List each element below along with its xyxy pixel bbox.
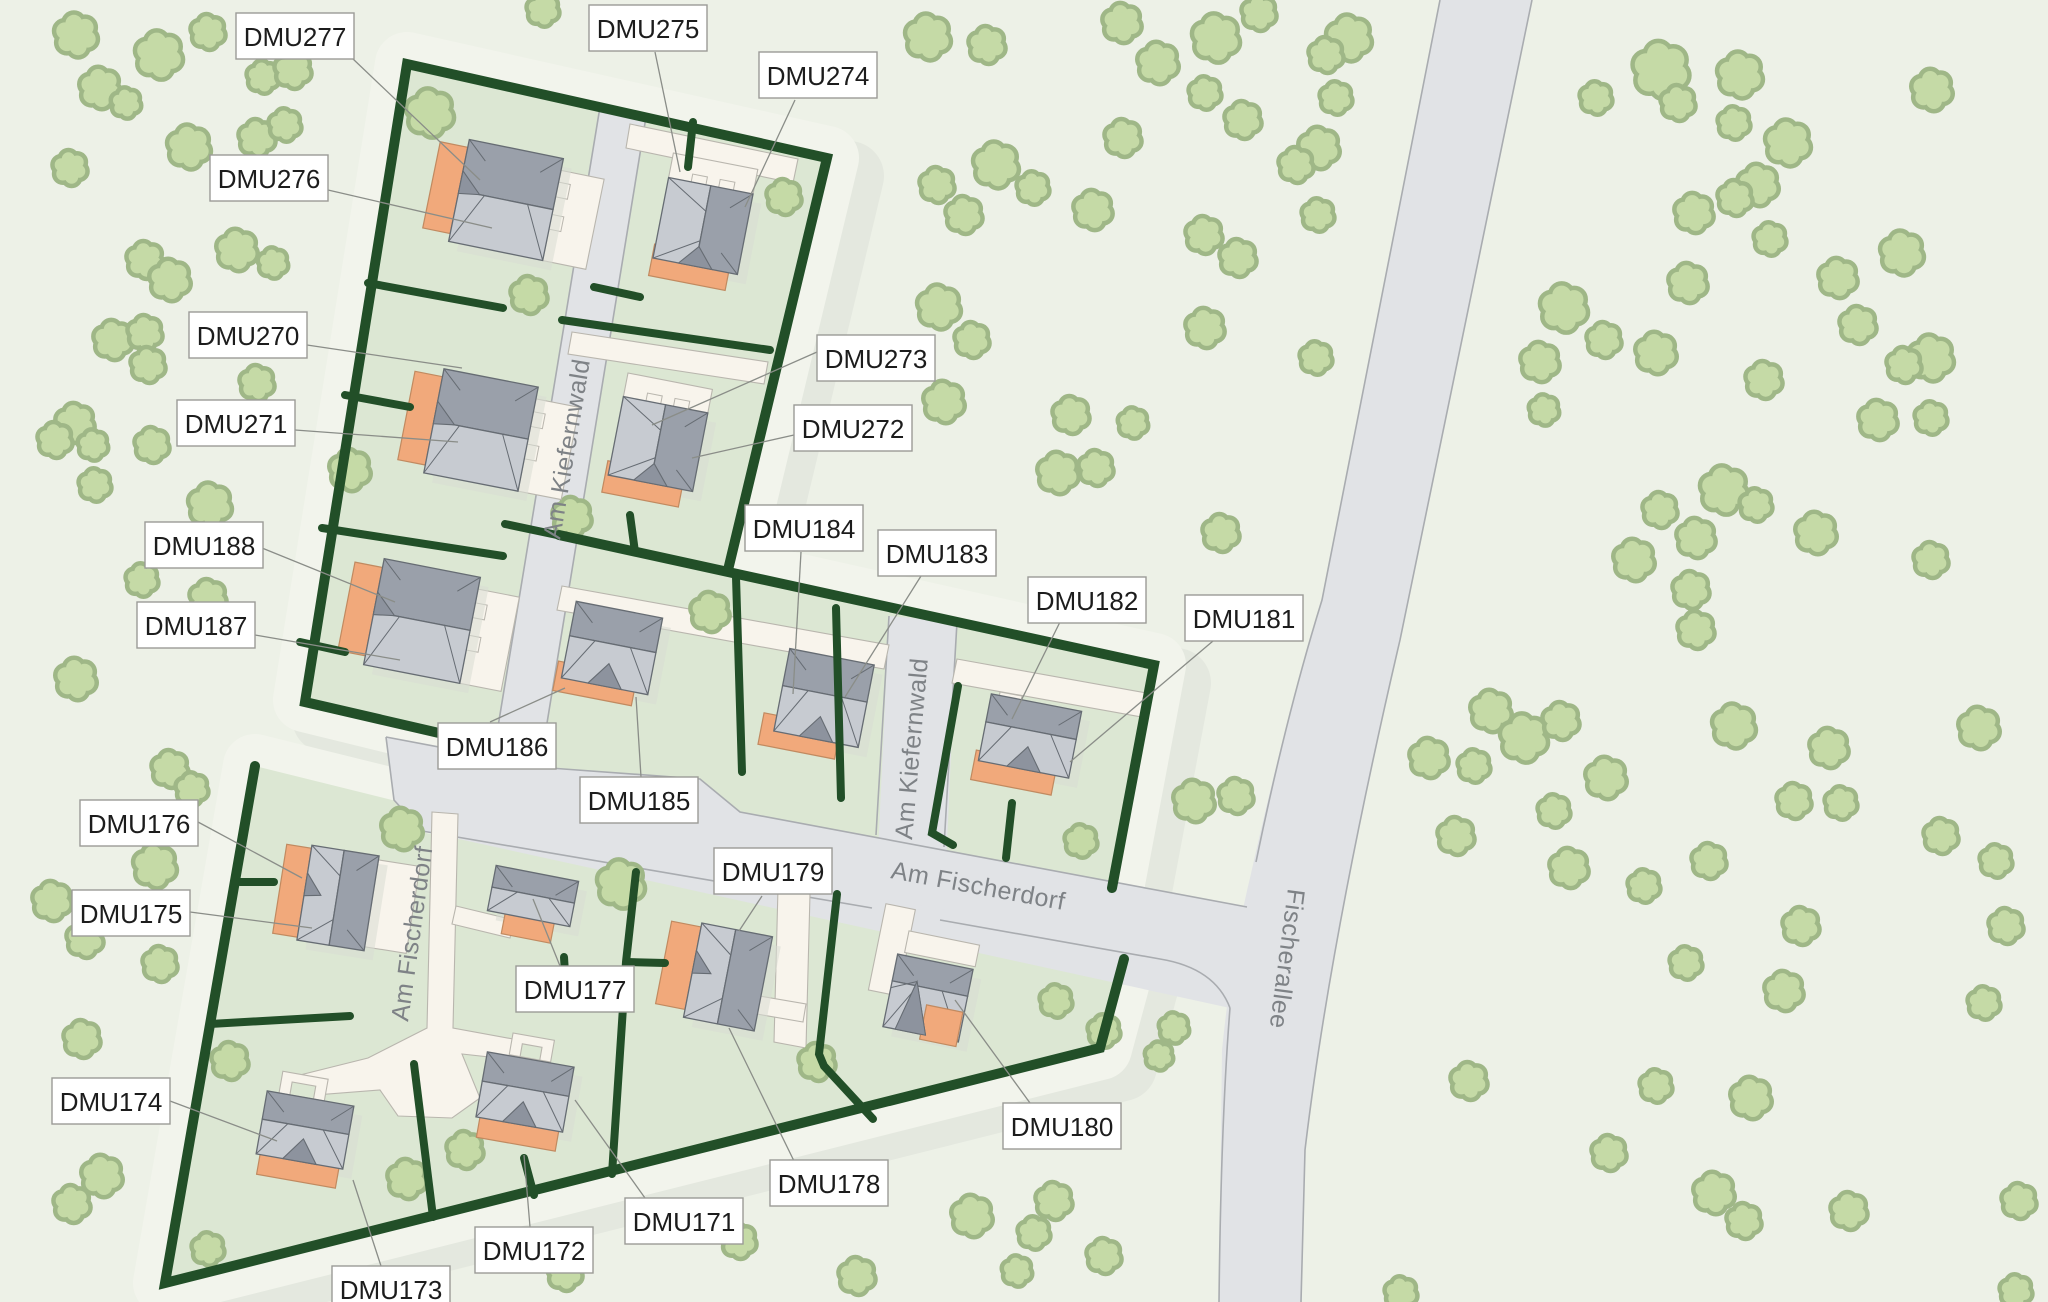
- svg-text:DMU272: DMU272: [802, 414, 905, 444]
- svg-text:DMU172: DMU172: [483, 1236, 586, 1266]
- svg-text:DMU176: DMU176: [88, 809, 191, 839]
- svg-text:DMU183: DMU183: [886, 539, 989, 569]
- svg-text:DMU173: DMU173: [340, 1275, 443, 1302]
- svg-text:DMU171: DMU171: [633, 1207, 736, 1237]
- svg-text:DMU271: DMU271: [185, 409, 288, 439]
- svg-text:DMU175: DMU175: [80, 899, 183, 929]
- svg-text:DMU274: DMU274: [767, 61, 870, 91]
- svg-text:DMU180: DMU180: [1011, 1112, 1114, 1142]
- svg-text:DMU273: DMU273: [825, 344, 928, 374]
- svg-text:DMU178: DMU178: [778, 1169, 881, 1199]
- svg-text:DMU177: DMU177: [524, 975, 627, 1005]
- svg-text:DMU174: DMU174: [60, 1087, 163, 1117]
- svg-text:DMU277: DMU277: [244, 22, 347, 52]
- svg-text:DMU185: DMU185: [588, 786, 691, 816]
- svg-text:DMU188: DMU188: [153, 531, 256, 561]
- svg-text:DMU182: DMU182: [1036, 586, 1139, 616]
- svg-text:DMU186: DMU186: [446, 732, 549, 762]
- svg-text:DMU187: DMU187: [145, 611, 248, 641]
- svg-text:DMU184: DMU184: [753, 514, 856, 544]
- svg-text:DMU179: DMU179: [722, 857, 825, 887]
- svg-text:DMU181: DMU181: [1193, 604, 1296, 634]
- svg-text:DMU276: DMU276: [218, 164, 321, 194]
- svg-text:DMU275: DMU275: [597, 14, 700, 44]
- svg-text:DMU270: DMU270: [197, 321, 300, 351]
